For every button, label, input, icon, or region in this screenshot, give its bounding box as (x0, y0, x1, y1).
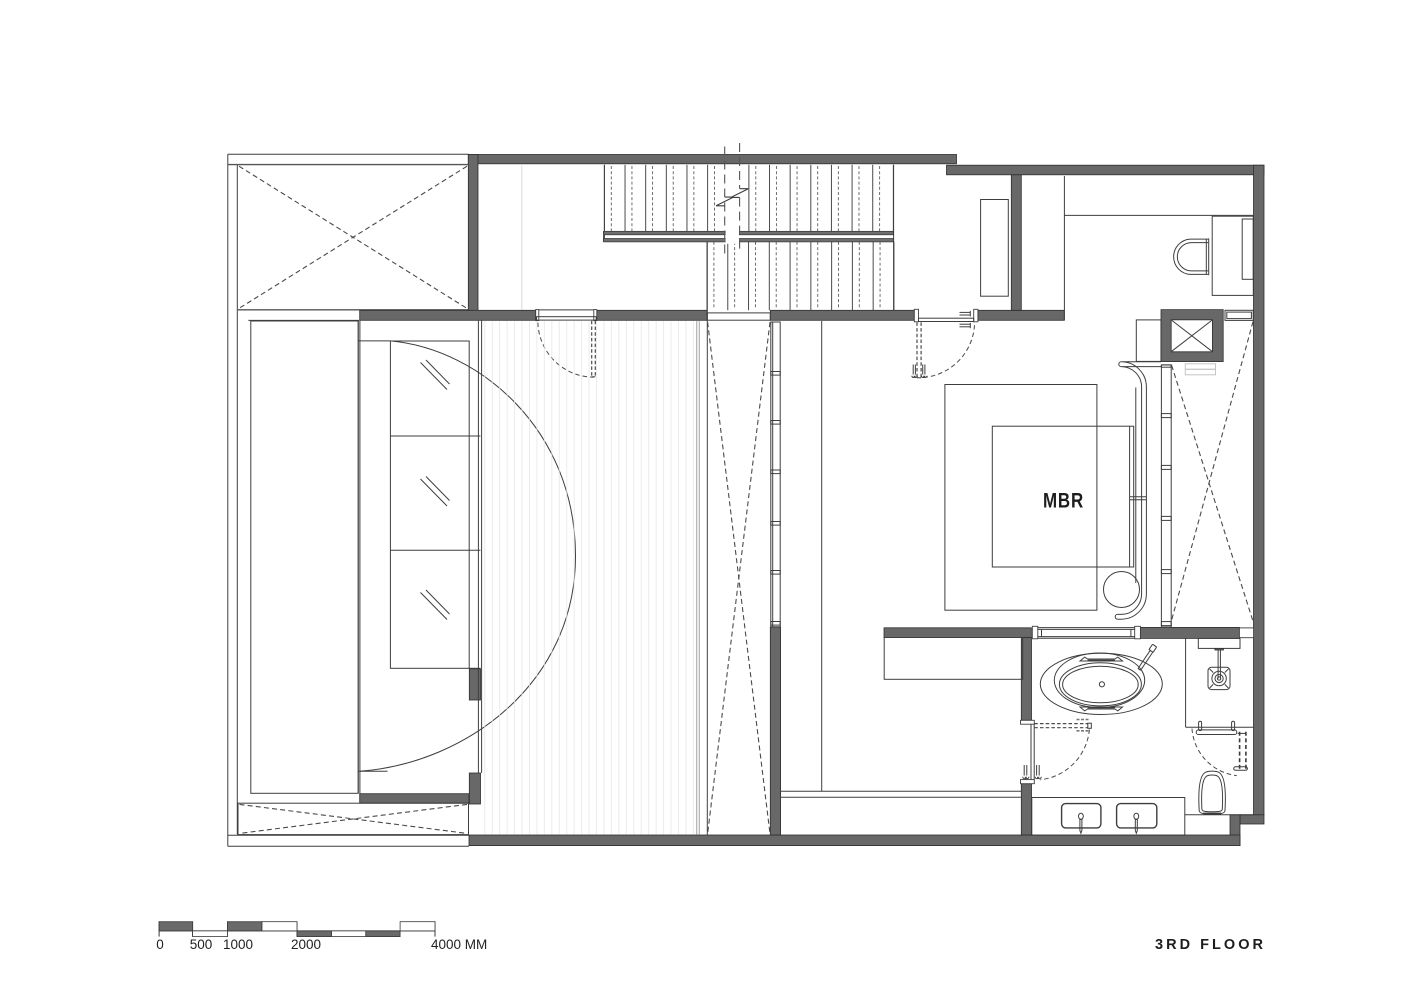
svg-text:4000 MM: 4000 MM (431, 937, 487, 952)
svg-text:0: 0 (156, 937, 164, 952)
svg-text:1000: 1000 (223, 937, 253, 952)
svg-text:MBR: MBR (1043, 490, 1084, 513)
svg-text:500: 500 (190, 937, 213, 952)
svg-text:2000: 2000 (291, 937, 321, 952)
